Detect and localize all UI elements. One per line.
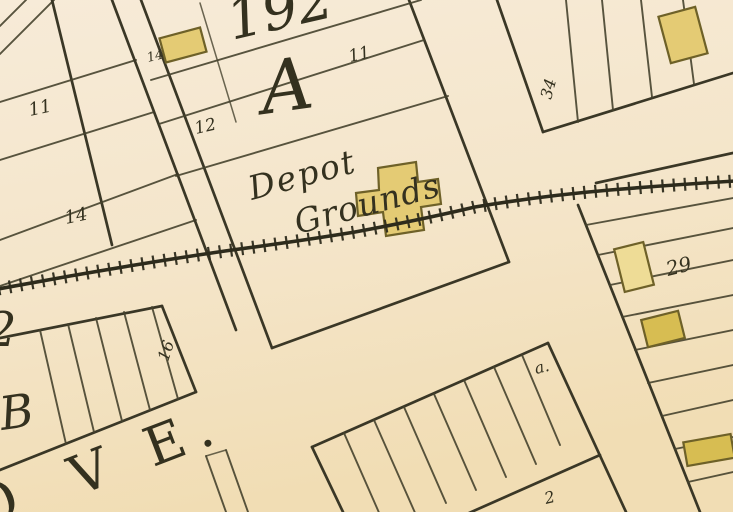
block-number-2: 2 (0, 302, 17, 358)
plat-map: 192 A 2 B Depot Grounds V E. O 11 14 11 … (0, 0, 733, 512)
plat-map-canvas: 192 A 2 B Depot Grounds V E. O 11 14 11 … (0, 0, 733, 512)
